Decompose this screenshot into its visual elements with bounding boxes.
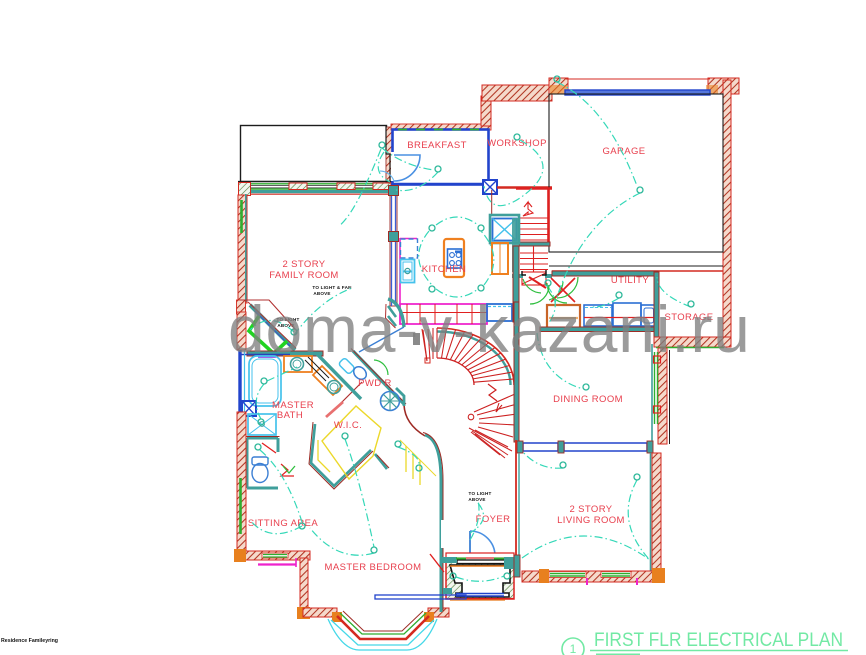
svg-text:Residence Famileyring: Residence Famileyring: [1, 638, 58, 644]
svg-text:UTILITY: UTILITY: [611, 275, 649, 286]
svg-text:ABOVE: ABOVE: [468, 497, 485, 502]
svg-text:LIVING ROOM: LIVING ROOM: [557, 515, 625, 526]
svg-text:FIRST FLR ELECTRICAL PLAN: FIRST FLR ELECTRICAL PLAN: [594, 630, 843, 651]
svg-text:TO LIGHT & FAN: TO LIGHT & FAN: [312, 285, 352, 290]
svg-text:BATH: BATH: [277, 410, 303, 421]
svg-text:2 STORY: 2 STORY: [282, 259, 325, 270]
svg-text:PWD R: PWD R: [358, 378, 392, 389]
svg-text:MASTER BEDROOM: MASTER BEDROOM: [325, 562, 422, 573]
svg-text:FAMILY ROOM: FAMILY ROOM: [269, 270, 339, 281]
svg-text:2 STORY: 2 STORY: [569, 504, 612, 515]
svg-text:KITCHEN: KITCHEN: [422, 264, 467, 275]
svg-text:W.I.C.: W.I.C.: [334, 420, 362, 431]
svg-text:DINING ROOM: DINING ROOM: [553, 394, 623, 405]
svg-text:1: 1: [570, 642, 577, 655]
svg-text:BREAKFAST: BREAKFAST: [407, 140, 467, 151]
svg-text:TO LIGHT: TO LIGHT: [469, 491, 492, 496]
svg-text:doma-v-kazani.ru: doma-v-kazani.ru: [228, 292, 751, 366]
svg-text:GARAGE: GARAGE: [602, 146, 645, 157]
